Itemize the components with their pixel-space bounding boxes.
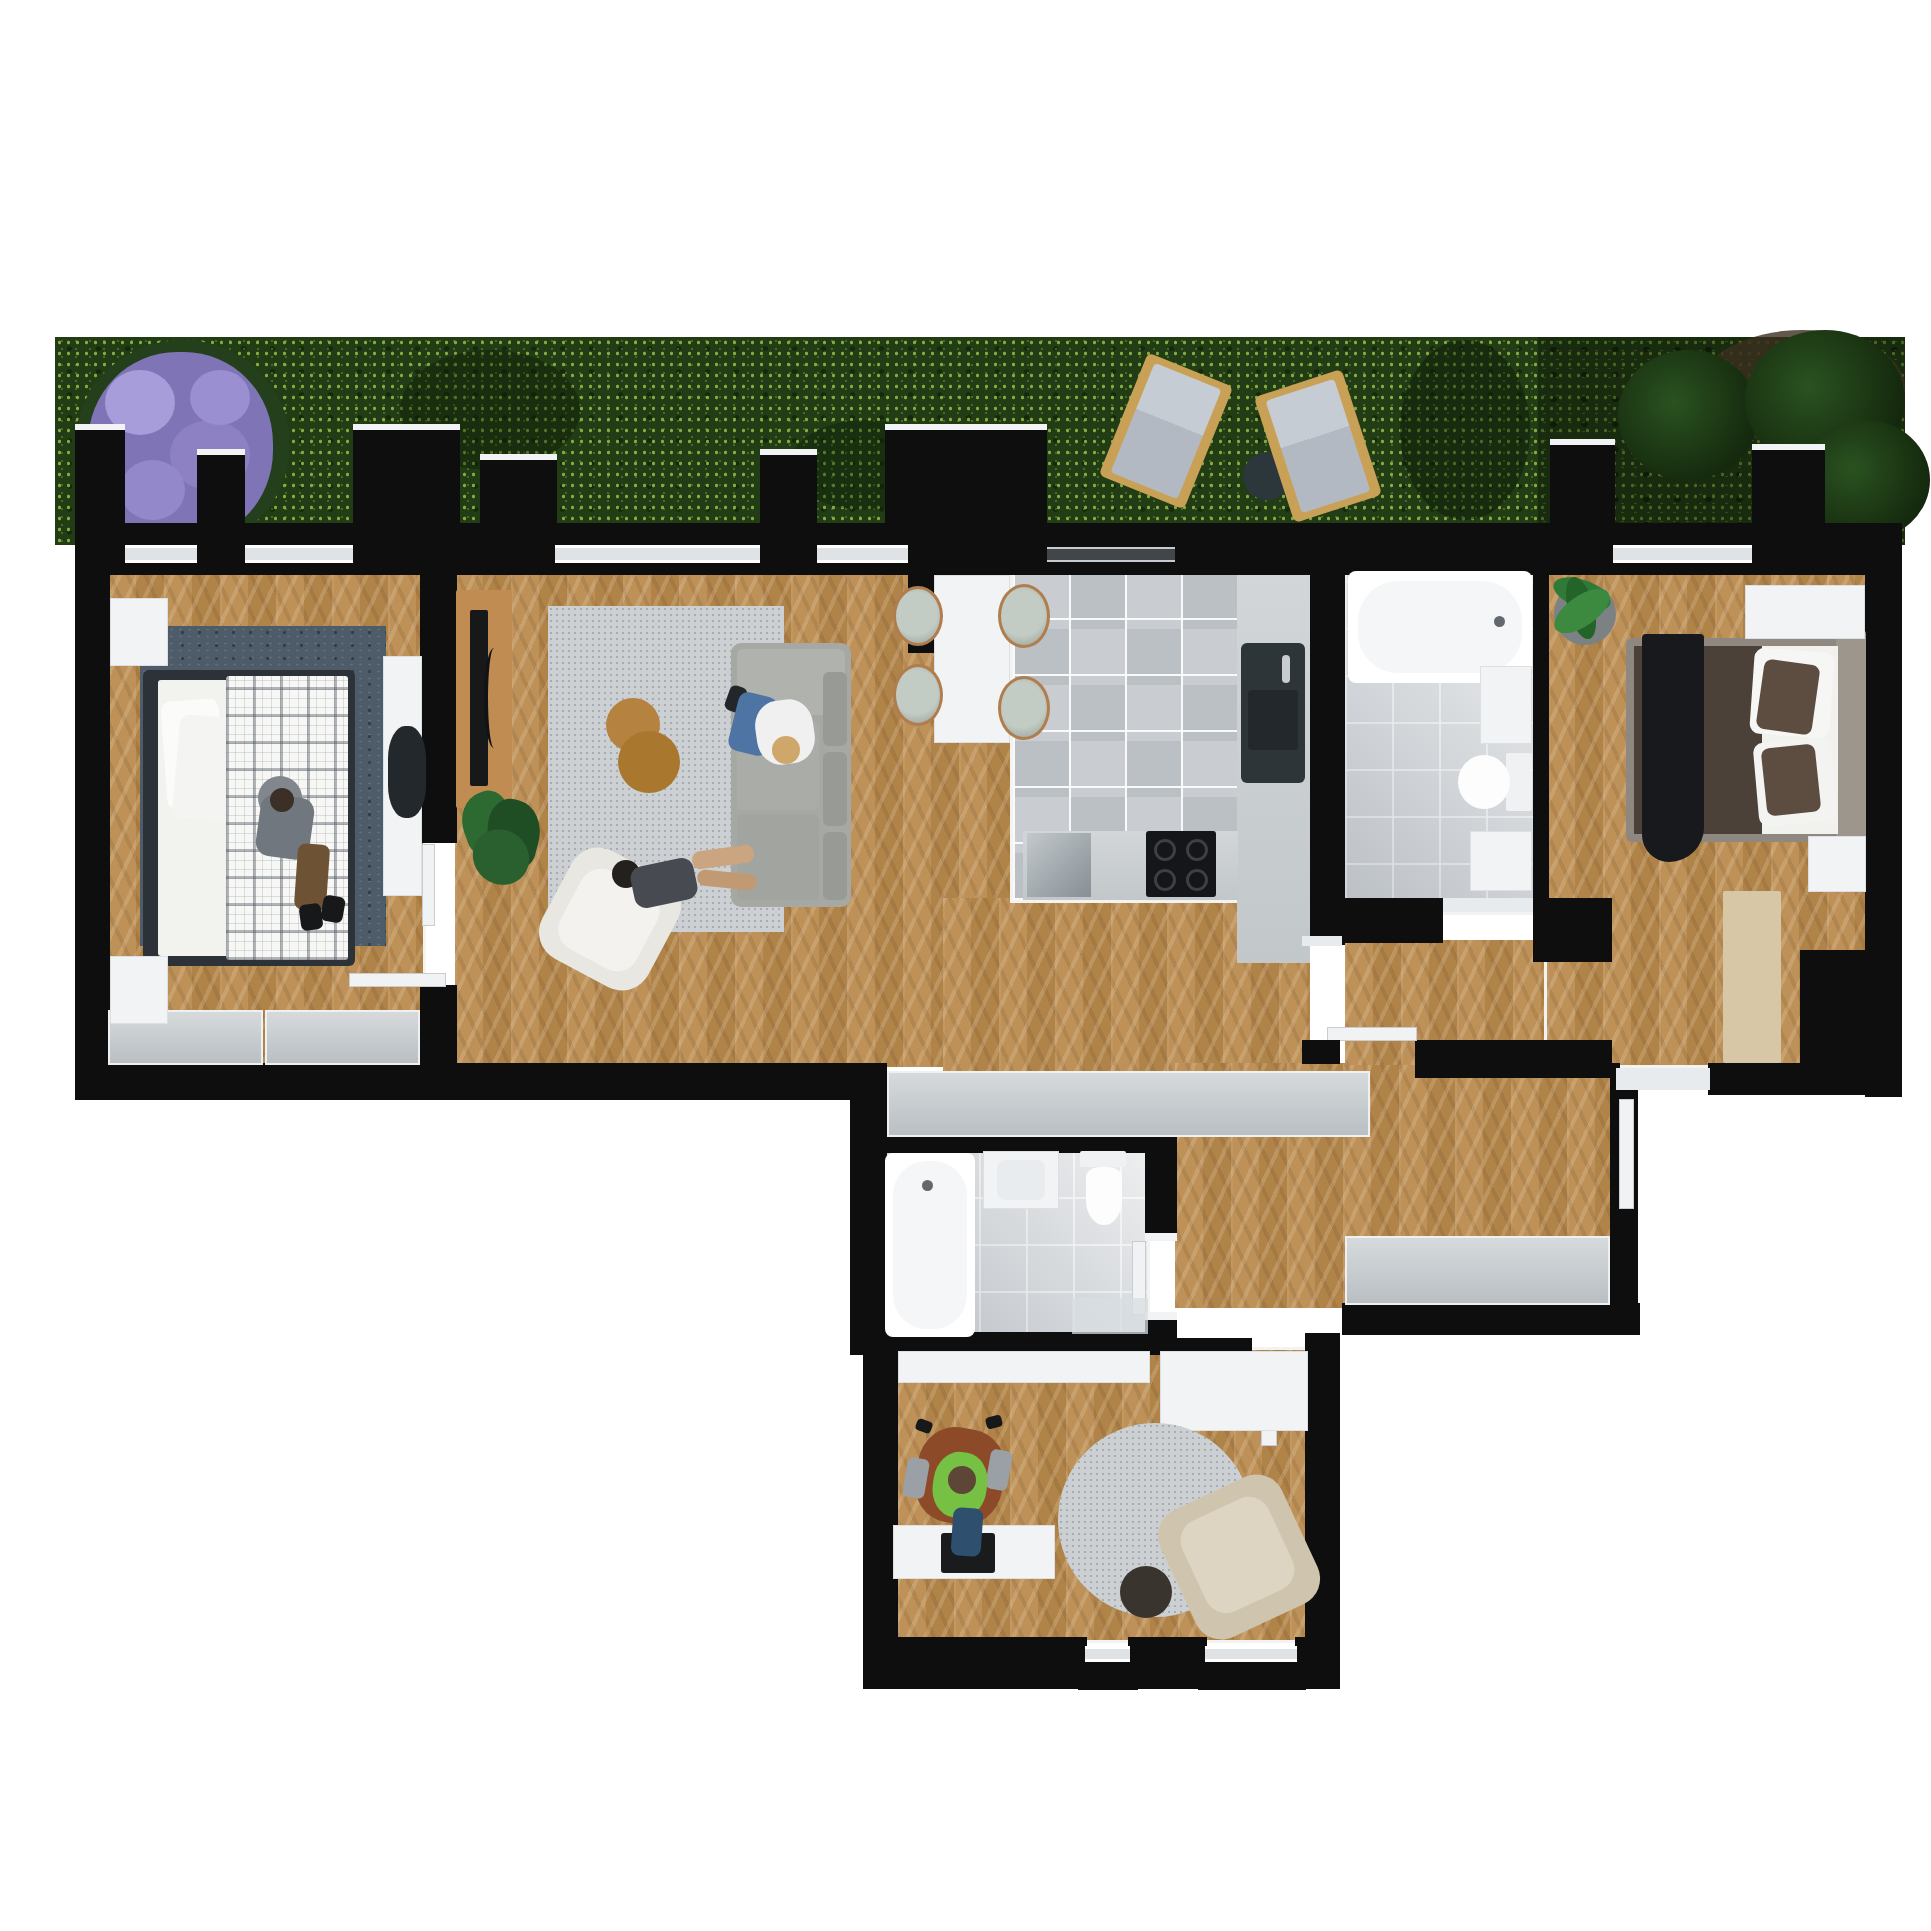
- apartment-plan: [0, 0, 1931, 1931]
- person-bed-boot-2: [320, 894, 346, 923]
- dining-chair-4: [998, 676, 1050, 740]
- wall-bottom-left: [75, 1063, 885, 1100]
- wall-bath-top-right: [1533, 558, 1549, 912]
- toilet-bath-top-bowl: [1458, 755, 1510, 809]
- floor-plan-canvas: [0, 0, 1931, 1931]
- kitchen-sink-basin: [1248, 690, 1298, 750]
- wall-bedroom2-bottom-b: [1708, 1063, 1902, 1095]
- wall-office-bottom-1: [863, 1637, 1087, 1689]
- shelf-office: [898, 1351, 1150, 1383]
- bed-right-pillow-1: [1755, 658, 1820, 735]
- pier-cap-7: [1550, 439, 1615, 445]
- tv-bracket: [484, 648, 504, 748]
- wardrobe-bedroom-right: [1723, 891, 1781, 1063]
- closet-office: [1160, 1351, 1308, 1431]
- cap-bath2-door-bottom: [1145, 1312, 1177, 1320]
- sill-bath-top-door: [1443, 898, 1533, 912]
- sofa-back-cushion-1: [823, 672, 847, 746]
- wall-bedroom-living-bottom: [420, 985, 457, 1065]
- pier-1: [75, 428, 125, 528]
- cooktop-ring-1: [1154, 839, 1176, 861]
- pier-cap-8: [1752, 444, 1825, 450]
- lilac-bloom-4: [120, 460, 185, 520]
- wardrobe-corridor: [1345, 1236, 1610, 1305]
- coffee-table-2: [618, 731, 680, 793]
- cabinet-bath-top: [1470, 831, 1532, 891]
- shower-glass-bottom: [1072, 1298, 1148, 1334]
- pier-cap-2: [197, 449, 245, 455]
- window-dining: [817, 545, 908, 563]
- pier-2: [197, 453, 245, 528]
- window-box-office-2: [1198, 1660, 1306, 1690]
- wall-bath-bottom-b: [1533, 898, 1612, 962]
- wall-left: [75, 523, 110, 1100]
- person-bed-boot-1: [298, 903, 323, 932]
- door-leaf-bedroom-left-open: [350, 974, 445, 986]
- nightstand-left-top: [110, 598, 168, 666]
- wall-corridor-bottom: [1342, 1303, 1640, 1335]
- window-office-2: [1205, 1646, 1297, 1662]
- wall-bath-bottom-a: [1345, 898, 1443, 943]
- dining-chair-2: [893, 664, 943, 726]
- sink-bath-bottom-basin: [997, 1160, 1045, 1200]
- window-office-1: [1085, 1646, 1130, 1662]
- pier-7: [1550, 443, 1615, 528]
- bathtub-top-inner: [1358, 581, 1522, 673]
- toilet-bath-bottom-tank: [1080, 1151, 1126, 1167]
- lilac-bloom-5: [190, 370, 250, 425]
- wall-bedroom-living-top: [420, 573, 457, 843]
- dishwasher: [1027, 833, 1091, 897]
- window-living: [555, 545, 760, 563]
- pier-3: [353, 428, 460, 528]
- sofa-back-cushion-3: [823, 832, 847, 900]
- sink-bath-top: [1480, 666, 1532, 744]
- wall-office-bottom-2: [1128, 1637, 1207, 1689]
- closet-hallway: [887, 1071, 1370, 1137]
- person-office-legs: [950, 1507, 983, 1557]
- person-bed-head: [270, 788, 294, 812]
- cap-bath2-door-top: [1145, 1233, 1177, 1241]
- nightstand-right-bottom: [1808, 836, 1866, 892]
- bed-right-throw: [1642, 634, 1704, 862]
- pier-6: [885, 428, 1047, 528]
- office-side-table: [1120, 1566, 1172, 1618]
- chair-bedroom-left: [388, 726, 426, 818]
- pier-8: [1752, 448, 1825, 528]
- bathtub-top-drain: [1494, 616, 1505, 627]
- dining-chair-1: [893, 586, 943, 646]
- garden-bush-1: [1618, 350, 1758, 480]
- garden-shade-3: [1400, 340, 1530, 520]
- wall-bath2-right-upper: [1145, 1137, 1177, 1237]
- window-kitchen: [1047, 547, 1175, 562]
- pier-cap-5: [760, 449, 817, 455]
- wardrobe-bedroom-left-b: [265, 1010, 420, 1065]
- bathtub-bottom-drain: [922, 1180, 933, 1191]
- kitchen-faucet: [1282, 655, 1290, 683]
- person-office-head: [948, 1466, 976, 1494]
- window-bedroom-left-1: [125, 545, 197, 563]
- bed-right-pillow-2: [1761, 743, 1822, 816]
- window-bedroom-left-2: [245, 545, 353, 563]
- pier-cap-1: [75, 424, 125, 430]
- wall-kitchen-bath: [1310, 573, 1345, 945]
- wall-office-left: [863, 1338, 898, 1688]
- sofa-back-cushion-2: [823, 752, 847, 826]
- nightstand-left-bottom: [110, 956, 168, 1024]
- person-sofa-head: [772, 736, 800, 764]
- pier-cap-6: [885, 424, 1047, 430]
- door-leaf-bedroom-right: [1620, 1100, 1633, 1208]
- door-hinge-block: [1302, 1040, 1340, 1064]
- pier-cap-4: [480, 454, 557, 460]
- pier-4: [480, 458, 557, 528]
- wall-hall-block: [850, 1063, 887, 1355]
- toilet-bath-bottom-bowl: [1086, 1167, 1122, 1225]
- sill-kitchen-hall: [1302, 936, 1342, 946]
- dining-chair-3: [998, 584, 1050, 648]
- pier-cap-3: [353, 424, 460, 430]
- nightstand-right-top: [1745, 585, 1865, 639]
- door-leaf-hall: [1328, 1028, 1416, 1040]
- pier-5: [760, 453, 817, 528]
- sill-bedroom2-door: [1616, 1068, 1710, 1090]
- bed-right-headboard: [1836, 630, 1866, 852]
- window-box-office-1: [1078, 1660, 1138, 1690]
- cooktop-ring-2: [1186, 839, 1208, 861]
- cooktop-ring-3: [1154, 869, 1176, 891]
- window-bedroom-right: [1613, 545, 1752, 563]
- door-leaf-bedroom-left: [423, 845, 434, 925]
- cooktop-ring-4: [1186, 869, 1208, 891]
- wall-corridor-top: [1415, 1040, 1612, 1078]
